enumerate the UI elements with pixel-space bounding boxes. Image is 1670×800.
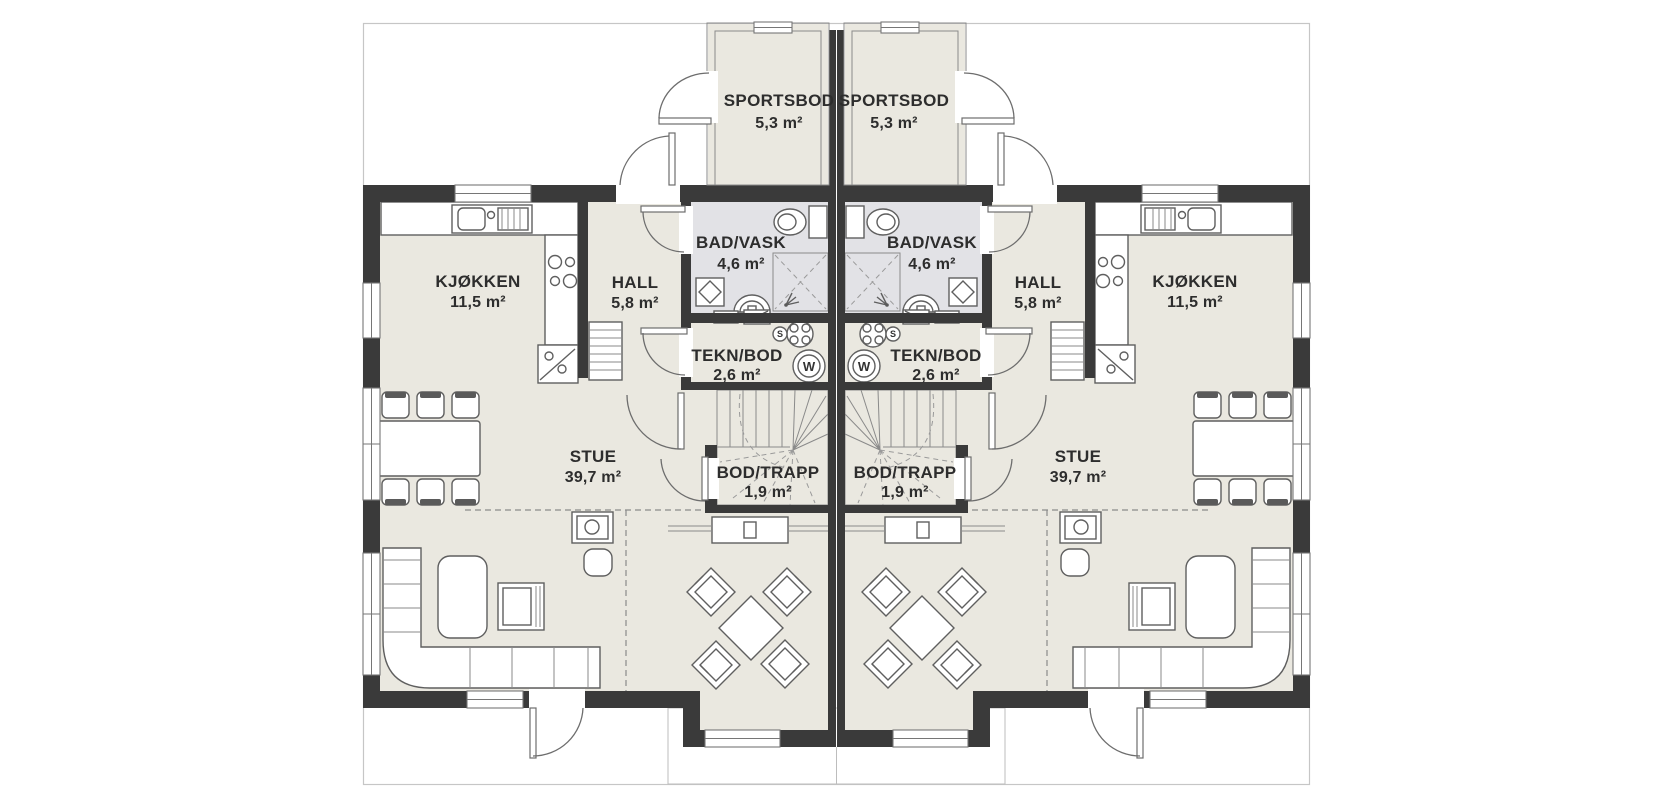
room-label-bod-trapp: BOD/TRAPP [717,463,820,482]
room-label-bad-vask: BAD/VASK [696,233,786,252]
washer-letter: W [858,359,871,374]
room-area-bod-trapp: 1,9 m² [881,484,928,501]
heater-letter: S [777,329,783,339]
room-label-hall: HALL [1015,273,1062,292]
unit-left [363,22,836,758]
room-area-hall: 5,8 m² [1014,295,1061,312]
room-label-stue: STUE [570,447,617,466]
room-area-sportsbod: 5,3 m² [870,115,917,132]
room-label-sportsbod: SPORTSBOD [724,91,834,110]
room-area-tekn-bod: 2,6 m² [912,367,959,384]
room-area-bad-vask: 4,6 m² [717,256,764,273]
room-label-tekn-bod: TEKN/BOD [890,346,981,365]
heater-letter: S [890,329,896,339]
room-area-hall: 5,8 m² [611,295,658,312]
room-label-stue: STUE [1055,447,1102,466]
room-label-sportsbod: SPORTSBOD [839,91,949,110]
floor-plan-drawing: SPORTSBOD 5,3 m² BAD/VASK 4,6 m² HALL 5,… [0,0,1670,800]
room-area-kjokken: 11,5 m² [450,294,506,311]
room-area-bod-trapp: 1,9 m² [744,484,791,501]
room-label-bad-vask: BAD/VASK [887,233,977,252]
washer-letter: W [803,359,816,374]
room-area-stue: 39,7 m² [1050,469,1107,486]
unit-right [837,22,1310,758]
room-label-tekn-bod: TEKN/BOD [691,346,782,365]
room-area-kjokken: 11,5 m² [1167,294,1223,311]
room-area-stue: 39,7 m² [565,469,622,486]
room-label-kjokken: KJØKKEN [435,272,520,291]
room-area-sportsbod: 5,3 m² [755,115,802,132]
room-label-hall: HALL [612,273,659,292]
room-area-tekn-bod: 2,6 m² [713,367,760,384]
room-area-bad-vask: 4,6 m² [908,256,955,273]
floor-plan-canvas: SPORTSBOD 5,3 m² BAD/VASK 4,6 m² HALL 5,… [0,0,1670,800]
room-label-kjokken: KJØKKEN [1152,272,1237,291]
room-label-bod-trapp: BOD/TRAPP [854,463,957,482]
